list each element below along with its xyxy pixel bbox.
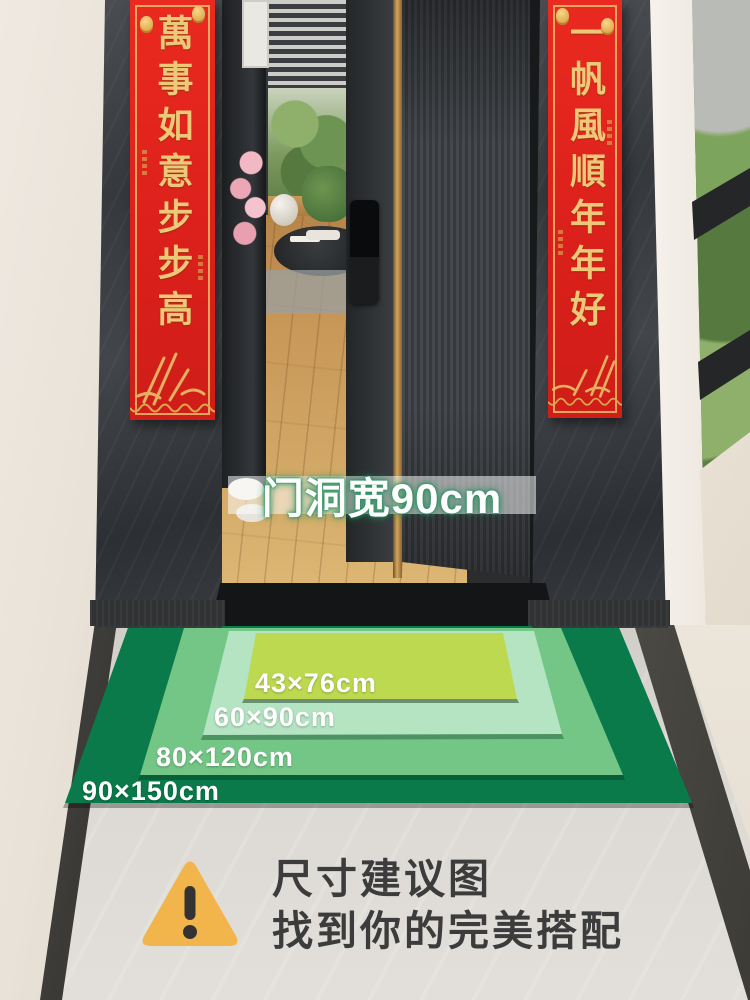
mat-60-shadow <box>201 734 564 740</box>
right-window <box>648 0 750 625</box>
seal-mark <box>142 150 147 176</box>
seal-mark <box>558 230 563 256</box>
lantern-ornament-icon <box>556 8 569 23</box>
pink-flowers <box>228 146 270 258</box>
table-items <box>306 230 340 240</box>
mat-size-label-43x76: 43×76cm <box>255 668 377 699</box>
seal-mark <box>198 255 203 281</box>
right-couplet: 一帆風順年年好 <box>548 0 622 418</box>
door-width-label: 门洞宽90cm <box>262 465 502 526</box>
entrance-size-guide-image: 43×76cm 60×90cm 80×120cm 90×150cm <box>0 0 750 1000</box>
lantern-ornament-icon <box>192 6 205 21</box>
caption-line-2: 找到你的完美搭配 <box>272 905 624 957</box>
mat-size-label-80x120: 80×120cm <box>156 742 294 773</box>
lantern-ornament-icon <box>140 16 153 31</box>
caption-line-1: 尺寸建议图 <box>272 853 624 905</box>
mat-size-label-60x90: 60×90cm <box>214 702 336 733</box>
smart-lock <box>350 200 379 304</box>
seal-mark <box>607 120 612 146</box>
left-couplet: 萬事如意步步高 <box>130 0 215 420</box>
warning-triangle-icon <box>140 858 240 950</box>
lantern-ornament-icon <box>601 18 614 33</box>
sphere-lamp <box>270 194 298 226</box>
left-pillar-base <box>90 600 225 626</box>
caption-text: 尺寸建议图 找到你的完美搭配 <box>272 853 624 957</box>
couplet-bottom-ornament-icon <box>130 336 215 414</box>
door-threshold <box>210 583 556 626</box>
wall-cabinet <box>242 0 269 68</box>
door-width-band: 门洞宽90cm <box>228 476 536 514</box>
right-pillar-base <box>528 600 670 626</box>
couplet-bottom-ornament-icon <box>548 334 622 412</box>
mat-size-label-90x150: 90×150cm <box>82 776 220 807</box>
